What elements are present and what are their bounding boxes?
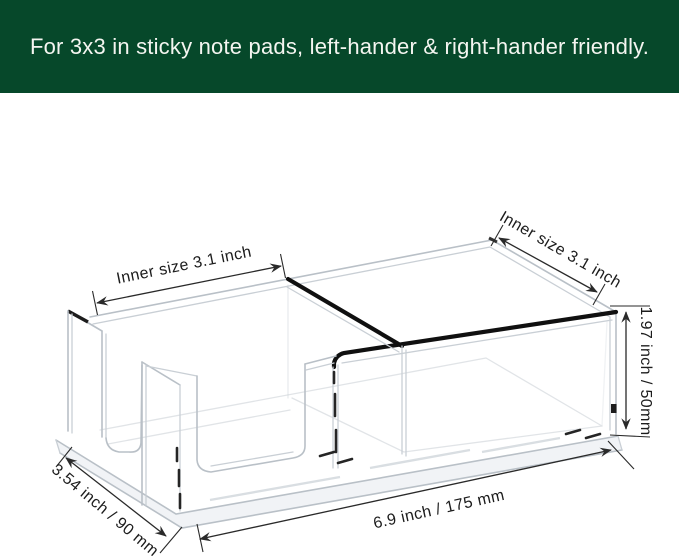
banner: For 3x3 in sticky note pads, left-hander…: [0, 0, 679, 93]
banner-text: For 3x3 in sticky note pads, left-hander…: [30, 34, 649, 60]
u-wall-base-reflections: [320, 452, 352, 463]
corner-reflection: [611, 404, 617, 413]
product-image: Inner size 3.1 inch Inner size 3.1 inch …: [0, 0, 679, 556]
dimension-inner-right: Inner size 3.1 inch: [491, 208, 624, 305]
front-wall-top-inner: [342, 320, 612, 363]
dimension-label-inner-left: Inner size 3.1 inch: [115, 244, 253, 288]
front-wall-post-reflections: [334, 372, 336, 452]
dimension-label-height: 1.97 inch / 50mm: [637, 306, 654, 435]
dimension-label-length: 6.9 inch / 175 mm: [372, 487, 506, 533]
divider-top-inner: [287, 287, 399, 352]
dimension-inner-left: Inner size 3.1 inch: [93, 244, 286, 315]
u-wall-left-top: [146, 366, 197, 376]
divider-top-accent: [288, 279, 402, 346]
u-wall-cutout-inner: [211, 452, 293, 466]
u-wall-right-top: [305, 356, 336, 364]
u-wall-right-top2: [306, 363, 334, 370]
corner-post-top: [142, 362, 180, 385]
right-base-reflections: [566, 430, 600, 438]
back-rim-inner: [93, 247, 490, 324]
dimension-annotations: Inner size 3.1 inch Inner size 3.1 inch …: [48, 208, 654, 556]
left-end-top-accent: [68, 311, 88, 322]
floor-lines: [100, 322, 607, 452]
divider-front-edge: [402, 346, 406, 456]
u-wall-cutout: [197, 364, 305, 472]
dimension-depth: 3.54 inch / 90 mm: [48, 447, 182, 556]
